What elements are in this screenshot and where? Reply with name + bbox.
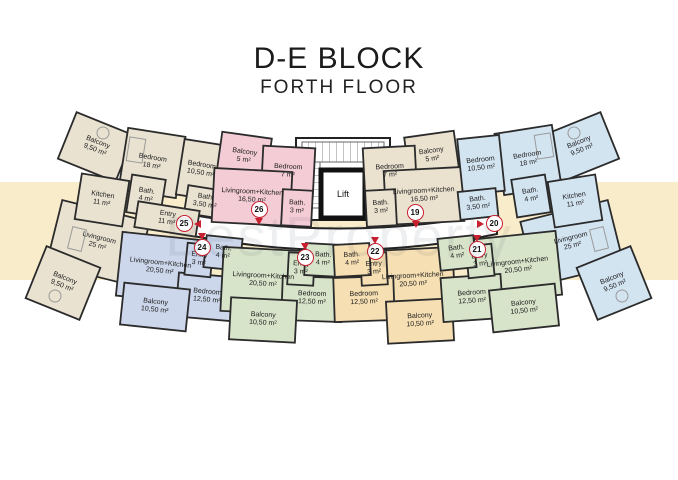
room-label-apt20-bath-4: Bath.4 m² [522, 186, 541, 205]
entry-arrow-25 [194, 220, 201, 228]
room-label-apt21-bedroom: Bedroom12,50 m² [457, 289, 487, 308]
room-label-apt20-bath-350: Bath.3,50 m² [465, 194, 490, 213]
entry-arrow-23 [301, 243, 309, 250]
room-label-apt25-bath-350: Bath.3,50 m² [192, 192, 218, 212]
room-label-apt19-balcony: Balcony5 m² [419, 146, 446, 166]
room-label-apt22-balcony: Balcony10,50 m² [406, 312, 434, 330]
page-subtitle: FORTH FLOOR [0, 77, 678, 99]
room-label-apt25-kitchen: Kitchen11 m² [89, 190, 115, 210]
entry-arrow-19 [412, 221, 420, 228]
room-label-apt23-bedroom: Bedroom12,50 m² [298, 290, 327, 308]
room-label-apt21-bath: Bath.4 m² [448, 244, 466, 262]
room-label-apt22-entry: Entry3 m² [365, 260, 382, 278]
entry-arrow-22 [371, 237, 379, 244]
room-label-apt19-bedroom: Bedroom7 m² [375, 163, 404, 181]
room-label-apt26-bath: Bath.3 m² [288, 199, 305, 217]
apartment-badge-24: 24 [194, 239, 211, 256]
room-label-apt23-livingroom-kitchen: Livingroom+Kitchen20,50 m² [232, 271, 294, 291]
room-label-apt26-bedroom: Bedroom7 m² [273, 163, 302, 181]
entry-arrow-24 [198, 233, 206, 240]
entry-arrow-26 [255, 218, 263, 225]
apartment-badge-21: 21 [469, 241, 486, 258]
apartment-badge-26: 26 [251, 201, 268, 218]
room-label-apt24-bedroom: Bedroom12,50 m² [192, 287, 222, 306]
room-label-apt20-bedroom-1050: Bedroom10,50 m² [466, 155, 496, 175]
lift-label: Lift [337, 189, 349, 199]
floorplan-page: D-E BLOCK FORTH FLOOR [0, 0, 678, 480]
room-label-apt22-bath: Bath.4 m² [343, 251, 360, 269]
apartment-badge-23: 23 [297, 249, 314, 266]
apartment-badge-25: 25 [176, 215, 193, 232]
room-label-apt23-bath: Bath.4 m² [314, 251, 331, 269]
room-label-apt19-livingroom-kitchen: Livingroom+Kitchen16,50 m² [393, 186, 455, 206]
entry-arrow-21 [473, 235, 481, 242]
page-title: D-E BLOCK [0, 42, 678, 76]
room-label-apt22-bedroom: Bedroom12,50 m² [350, 290, 379, 308]
apartment-badge-22: 22 [367, 243, 384, 260]
entry-arrow-20 [477, 220, 484, 228]
room-label-apt26-balcony: Balcony5 m² [231, 147, 258, 167]
room-label-apt25-bath-4: Bath.4 m² [137, 186, 156, 205]
room-label-apt23-balcony: Balcony10,50 m² [249, 311, 277, 329]
room-label-apt19-bath: Bath.3 m² [372, 199, 389, 217]
room-label-apt24-balcony: Balcony10,50 m² [140, 297, 169, 317]
room-label-apt24-bath: Bath.4 m² [214, 244, 232, 262]
room-label-apt21-balcony: Balcony10,50 m² [509, 298, 538, 318]
apartment-badge-20: 20 [486, 215, 503, 232]
room-label-apt22-livingroom-kitchen: Livingroom+Kitchen20,50 m² [382, 271, 444, 291]
room-label-apt25-entry: Entry11 m² [157, 209, 177, 228]
apartment-badge-19: 19 [407, 204, 424, 221]
